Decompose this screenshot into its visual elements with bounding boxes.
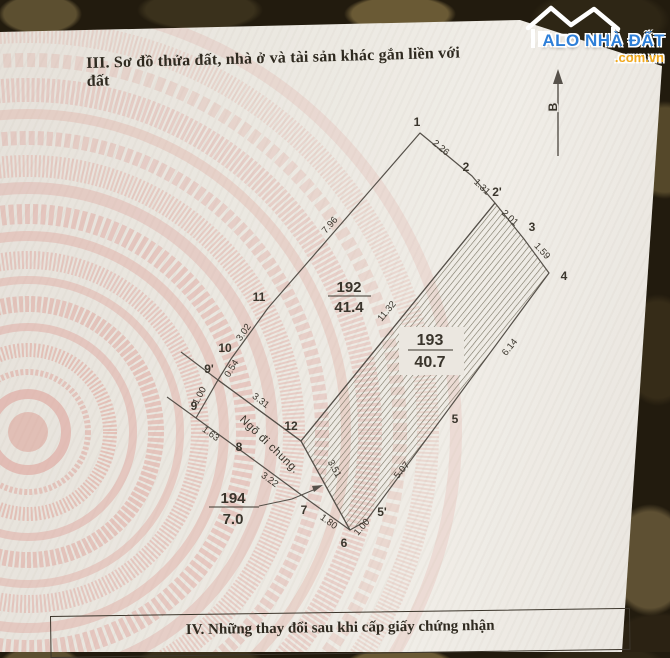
logo-brand-text: ALO NHÀ ĐẤT [542, 31, 665, 51]
north-label: B [546, 102, 560, 111]
vertex-label-4: 4 [561, 269, 568, 283]
parcel-193-number: 193 [417, 332, 444, 349]
alo-nha-dat-watermark-logo: ALO NHÀ ĐẤT .com.vn [520, 0, 670, 72]
vertex-label-10: 10 [218, 341, 232, 355]
vertex-label-5: 5 [452, 412, 459, 426]
section4-box: IV. Những thay đổi sau khi cấp giấy chứn… [50, 608, 631, 658]
vertex-label-9p: 9' [204, 362, 214, 376]
vertex-label-2: 2 [463, 160, 470, 174]
section4-title: IV. Những thay đổi sau khi cấp giấy chứn… [51, 616, 629, 641]
vertex-label-7: 7 [301, 503, 308, 517]
vertex-label-11: 11 [253, 290, 266, 304]
edge-length-label: 6.14 [500, 337, 520, 358]
edge-length-label: 7.96 [320, 215, 340, 236]
vertex-label-1: 1 [414, 115, 421, 129]
parcel-194-number: 194 [220, 490, 246, 507]
photographed-certificate-page: 19241.419340.71947.0122'3455'67899'10111… [0, 0, 670, 652]
edge-length-label: 2.26 [430, 138, 451, 158]
parcel-192-number: 192 [336, 279, 361, 296]
parcel-194-area: 7.0 [223, 511, 244, 528]
vertex-label-12: 12 [284, 419, 298, 433]
vertex-label-3: 3 [529, 220, 536, 234]
vertex-label-2p: 2' [492, 185, 502, 199]
edge-length-label: 1.31 [471, 177, 492, 198]
vertex-label-6: 6 [341, 536, 348, 550]
parcel-192-area: 41.4 [334, 299, 364, 316]
watermark-center [8, 412, 48, 452]
parcel-193-area: 40.7 [414, 354, 445, 371]
vertex-label-8: 8 [236, 440, 243, 454]
dong-son-drum-watermark [0, 4, 456, 652]
vertex-label-5p: 5' [377, 505, 387, 519]
cadastral-diagram-canvas: 19241.419340.71947.0122'3455'67899'10111… [0, 0, 670, 652]
logo-domain-text: .com.vn [615, 50, 664, 65]
